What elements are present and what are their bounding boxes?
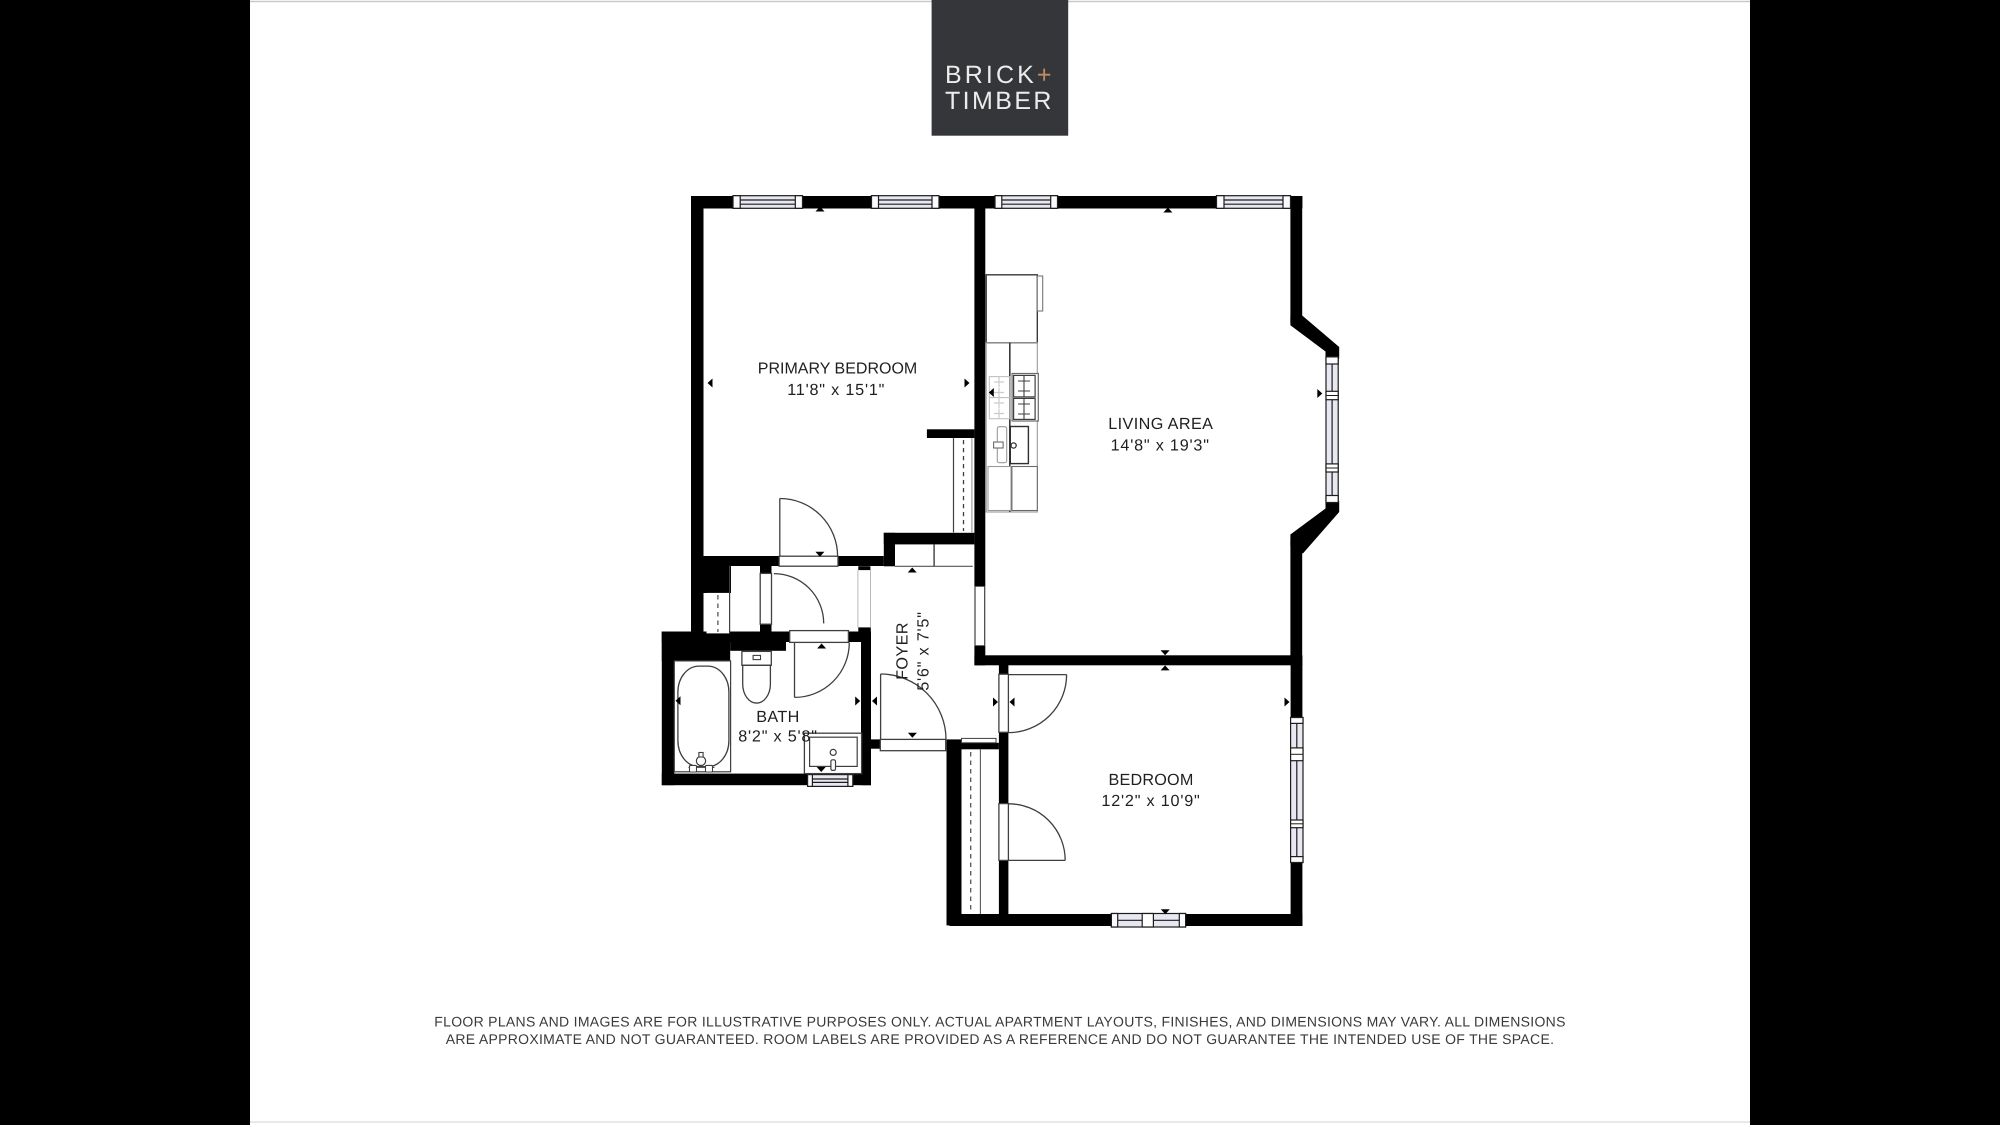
svg-text:TIMBER: TIMBER (945, 87, 1054, 115)
svg-text:FOYER: FOYER (893, 622, 911, 680)
svg-text:14'8" x 19'3": 14'8" x 19'3" (1111, 437, 1210, 455)
svg-text:PRIMARY BEDROOM: PRIMARY BEDROOM (758, 361, 917, 378)
svg-text:ARE APPROXIMATE AND NOT GUARAN: ARE APPROXIMATE AND NOT GUARANTEED. ROOM… (446, 1031, 1555, 1047)
svg-text:BEDROOM: BEDROOM (1108, 771, 1193, 789)
svg-text:BRICK+: BRICK+ (945, 61, 1055, 89)
svg-text:5'6" x 7'5": 5'6" x 7'5" (914, 611, 932, 691)
svg-text:8'2" x 5'8": 8'2" x 5'8" (738, 728, 818, 746)
svg-text:11'8" x 15'1": 11'8" x 15'1" (787, 381, 885, 399)
svg-text:12'2" x 10'9": 12'2" x 10'9" (1101, 792, 1200, 810)
svg-text:FLOOR PLANS AND IMAGES ARE FOR: FLOOR PLANS AND IMAGES ARE FOR ILLUSTRAT… (434, 1014, 1565, 1030)
svg-text:BATH: BATH (756, 708, 800, 726)
svg-text:LIVING AREA: LIVING AREA (1108, 415, 1213, 433)
